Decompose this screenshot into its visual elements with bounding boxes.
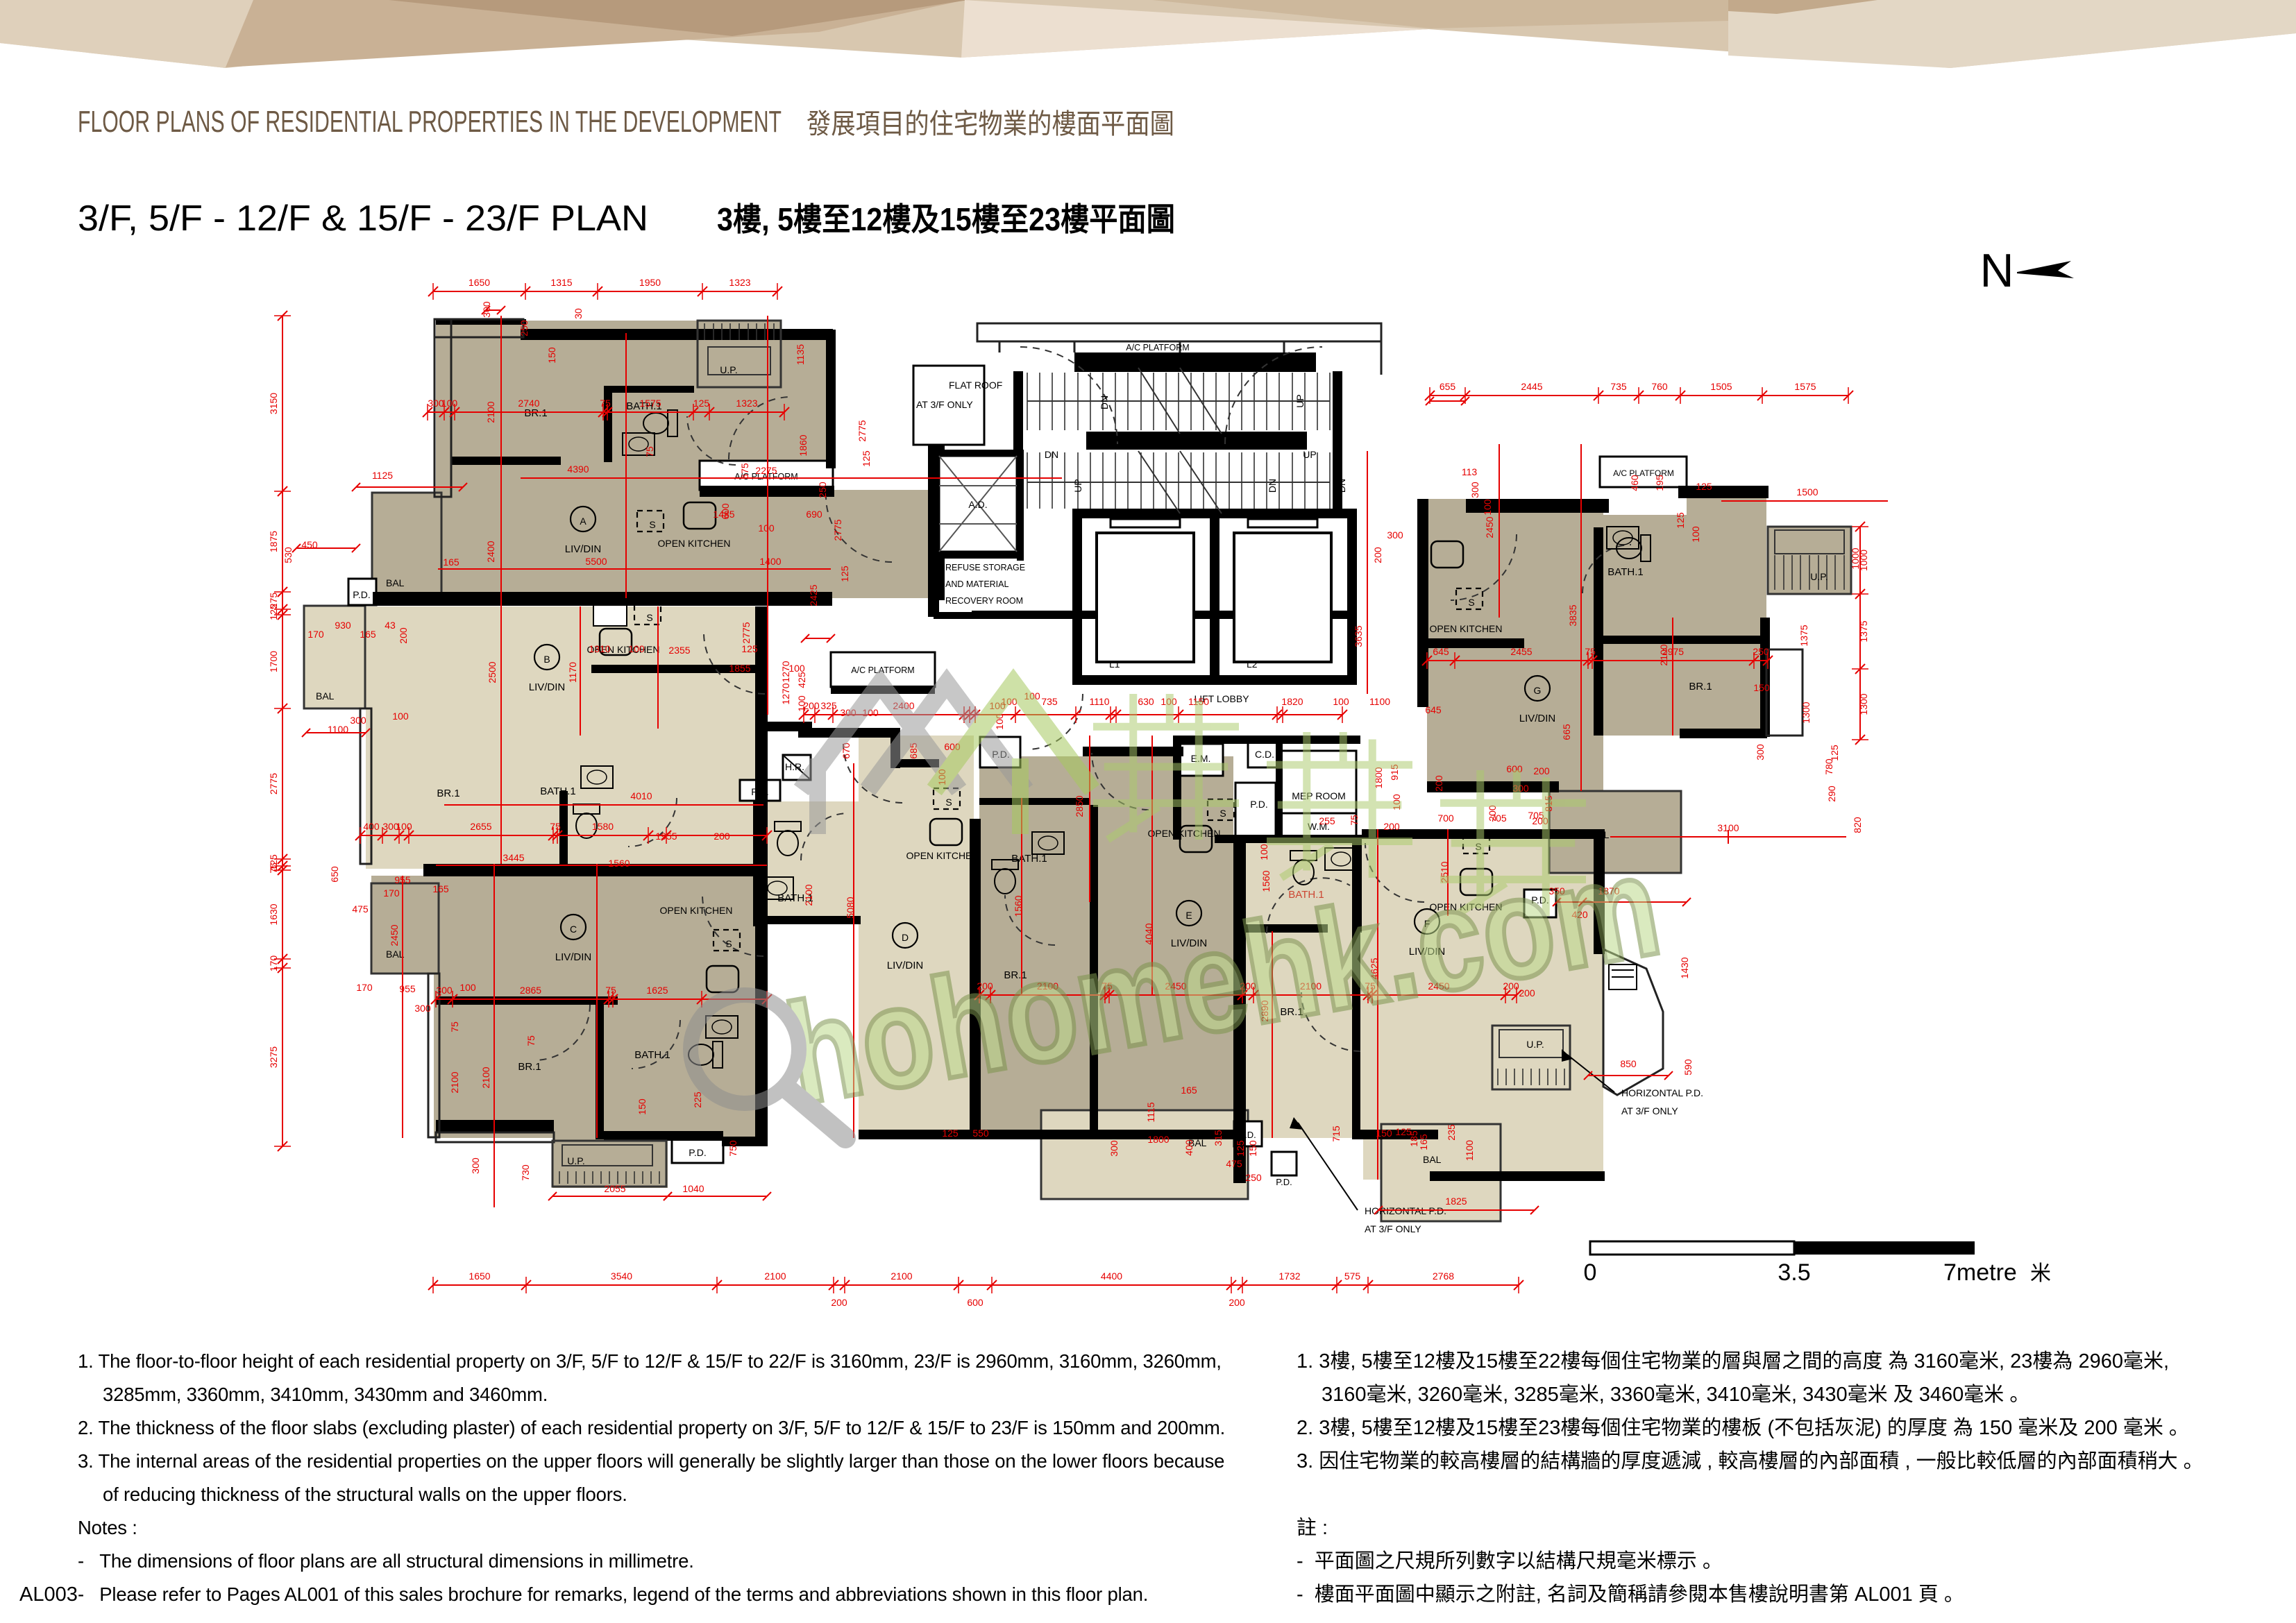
svg-text:200: 200 [714,831,730,842]
svg-text:3540: 3540 [611,1271,632,1282]
svg-text:30: 30 [573,308,584,319]
svg-text:200: 200 [1533,765,1550,776]
svg-text:170: 170 [307,629,324,640]
svg-text:BATH.1: BATH.1 [540,785,575,797]
svg-text:1375: 1375 [1858,620,1869,642]
svg-text:LIV/DIN: LIV/DIN [565,543,602,555]
svg-text:125: 125 [861,450,872,467]
svg-text:H.R.: H.R. [785,761,804,772]
svg-text:645: 645 [1425,704,1442,715]
svg-text:N: N [1980,244,2014,297]
svg-text:550: 550 [972,1128,989,1139]
svg-text:A.D.: A.D. [968,499,987,510]
svg-text:2775: 2775 [741,622,752,643]
svg-text:1650: 1650 [469,277,490,288]
svg-text:發展項目的住宅物業的樓面平面圖: 發展項目的住宅物業的樓面平面圖 [807,109,1174,139]
svg-text:170: 170 [268,955,279,972]
svg-text:1430: 1430 [1679,957,1690,978]
svg-text:LIV/DIN: LIV/DIN [529,681,566,693]
svg-text:U.P.: U.P. [1810,571,1827,582]
svg-text:100: 100 [628,643,645,654]
svg-text:1110: 1110 [1089,696,1109,707]
svg-text:225: 225 [692,1091,703,1108]
svg-text:1000: 1000 [1850,547,1861,569]
svg-text:700: 700 [1437,813,1454,824]
svg-text:530: 530 [282,547,294,563]
svg-text:4400: 4400 [1101,1271,1122,1282]
svg-text:125: 125 [693,398,710,409]
svg-text:1505: 1505 [1710,381,1732,392]
svg-text:DN: DN [1045,449,1058,460]
svg-text:150: 150 [1753,682,1770,693]
svg-text:AND MATERIAL: AND MATERIAL [945,579,1008,589]
svg-text:AT 3/F ONLY: AT 3/F ONLY [916,399,973,410]
svg-text:165: 165 [360,629,376,640]
svg-text:575: 575 [1344,1271,1361,1282]
svg-text:185: 185 [1408,1130,1419,1147]
svg-text:P.D.: P.D. [353,589,370,600]
svg-text:UP: UP [1303,449,1316,460]
svg-text:300: 300 [470,1157,481,1174]
svg-text:113: 113 [1462,466,1478,477]
svg-text:DN: DN [1099,396,1110,409]
svg-text:1315: 1315 [550,277,572,288]
svg-text:250: 250 [518,320,530,337]
svg-text:675: 675 [739,463,750,479]
svg-text:735: 735 [1610,381,1627,392]
svg-text:100: 100 [441,398,458,409]
svg-text:2445: 2445 [1521,381,1542,392]
svg-text:100: 100 [392,711,409,722]
svg-text:3/F, 5/F - 12/F & 15/F - 23/F: 3/F, 5/F - 12/F & 15/F - 23/F PLAN [78,198,648,239]
svg-text:1300: 1300 [1858,693,1869,715]
svg-text:LIV/DIN: LIV/DIN [1519,713,1556,724]
svg-text:400: 400 [1183,1139,1195,1156]
svg-text:1625: 1625 [646,985,668,996]
svg-text:125: 125 [942,1128,959,1139]
svg-text:75: 75 [268,863,279,874]
svg-text:650: 650 [329,866,340,883]
svg-text:OPEN KITCHEN: OPEN KITCHEN [906,850,979,861]
svg-text:300: 300 [414,1003,431,1014]
svg-text:OPEN KITCHEN: OPEN KITCHEN [659,905,732,916]
svg-text:1310: 1310 [589,643,610,654]
svg-text:290: 290 [1826,785,1837,802]
svg-text:645: 645 [1433,646,1449,657]
svg-text:RECOVERY ROOM: RECOVERY ROOM [945,596,1023,606]
svg-text:850: 850 [1620,1058,1637,1069]
svg-text:2355: 2355 [668,645,690,656]
svg-text:75: 75 [550,821,561,832]
svg-text:125: 125 [1235,1140,1246,1157]
svg-text:170: 170 [383,887,400,899]
svg-text:MEP ROOM: MEP ROOM [1292,790,1346,801]
svg-text:1100: 1100 [1464,1140,1475,1161]
svg-text:C.D.: C.D. [1255,749,1274,760]
svg-text:5500: 5500 [585,556,607,567]
svg-text:250: 250 [1245,1172,1262,1183]
svg-text:1400: 1400 [759,556,781,567]
svg-text:100: 100 [396,821,412,832]
svg-text:75: 75 [600,398,611,409]
svg-text:930: 930 [335,620,351,631]
svg-text:125: 125 [741,643,758,654]
svg-text:1800: 1800 [1147,1134,1169,1145]
svg-text:1732: 1732 [1278,1271,1300,1282]
svg-text:LIV/DIN: LIV/DIN [555,951,592,963]
svg-text:475: 475 [352,903,369,915]
svg-text:735: 735 [1041,696,1058,707]
svg-text:200: 200 [398,627,409,644]
svg-text:2400: 2400 [485,541,496,562]
svg-text:L1: L1 [1109,658,1120,670]
svg-text:400: 400 [363,821,380,832]
svg-text:75: 75 [1349,815,1360,826]
svg-text:125: 125 [1829,745,1840,761]
svg-text:2655: 2655 [470,821,491,832]
svg-text:L2: L2 [1247,658,1258,670]
svg-text:150: 150 [636,1098,648,1115]
svg-text:125: 125 [268,604,279,620]
svg-text:1040: 1040 [682,1183,704,1194]
svg-text:600: 600 [967,1297,984,1308]
svg-text:1855: 1855 [729,663,750,674]
svg-text:1825: 1825 [1445,1196,1467,1207]
svg-text:1560: 1560 [1260,870,1272,892]
svg-text:BAL: BAL [386,577,405,588]
svg-text:U.P.: U.P. [567,1155,584,1166]
svg-text:S: S [646,612,652,623]
svg-text:U.P.: U.P. [720,364,737,375]
svg-text:FLOOR PLANS OF RESIDENTIAL PRO: FLOOR PLANS OF RESIDENTIAL PROPERTIES IN… [78,105,782,139]
svg-text:2775: 2775 [856,420,868,441]
svg-text:100: 100 [459,982,476,993]
svg-text:125: 125 [1675,512,1686,529]
svg-text:1955: 1955 [655,831,677,842]
svg-text:1560: 1560 [1013,895,1024,917]
svg-text:UP: UP [1294,394,1306,407]
svg-text:820: 820 [1852,817,1863,833]
svg-text:BATH.1: BATH.1 [634,1049,670,1061]
svg-text:2775: 2775 [832,519,843,541]
svg-text:255: 255 [1319,815,1335,826]
svg-text:2768: 2768 [1433,1271,1454,1282]
svg-text:1575: 1575 [639,398,661,409]
svg-text:100: 100 [1690,526,1701,543]
svg-text:OPEN KITCHEN: OPEN KITCHEN [657,538,730,549]
svg-text:2865: 2865 [520,985,541,996]
svg-text:150: 150 [1376,1128,1392,1139]
svg-text:BR.1: BR.1 [518,1061,541,1073]
svg-text:D: D [902,932,909,943]
svg-text:165: 165 [1181,1085,1197,1096]
svg-text:P.D.: P.D. [1250,799,1267,810]
svg-text:1323: 1323 [729,277,750,288]
svg-text:630: 630 [1138,696,1154,707]
svg-text:P.D.: P.D. [689,1147,706,1158]
svg-text:1100: 1100 [1369,696,1390,707]
svg-text:2455: 2455 [1510,646,1532,657]
svg-text:3樓, 5樓至12樓及15樓至23樓平面圖: 3樓, 5樓至12樓及15樓至23樓平面圖 [717,201,1175,237]
svg-text:655: 655 [1440,381,1456,392]
svg-text:1650: 1650 [469,1271,490,1282]
svg-text:200: 200 [1372,547,1383,563]
svg-text:P.D.: P.D. [1276,1177,1292,1187]
svg-text:100: 100 [1258,844,1269,860]
svg-text:2275: 2275 [755,465,777,476]
svg-text:OPEN KITCHEN: OPEN KITCHEN [1429,623,1502,634]
svg-text:165: 165 [1418,1134,1429,1150]
svg-text:BR.1: BR.1 [524,407,547,419]
svg-text:4010: 4010 [630,790,652,801]
svg-text:150: 150 [1247,1140,1258,1157]
svg-text:200: 200 [803,700,820,711]
svg-text:S: S [1468,597,1474,608]
svg-text:A/C PLATFORM: A/C PLATFORM [1126,343,1189,352]
svg-text:3835: 3835 [1567,604,1578,626]
svg-text:75: 75 [449,1021,460,1033]
svg-text:2055: 2055 [604,1183,625,1194]
svg-text:170: 170 [356,982,373,993]
svg-text:165: 165 [432,883,449,894]
svg-text:2450: 2450 [389,924,400,946]
svg-text:4390: 4390 [567,464,589,475]
svg-text:200: 200 [1383,821,1400,832]
svg-text:730: 730 [520,1164,531,1181]
svg-text:2425: 2425 [808,584,819,606]
svg-text:195: 195 [1654,475,1665,491]
svg-text:100: 100 [1333,696,1349,707]
svg-text:325: 325 [820,700,837,711]
svg-text:1135: 1135 [795,344,806,365]
svg-text:2100: 2100 [485,401,496,423]
svg-text:750: 750 [727,1140,738,1157]
svg-text:300: 300 [1108,1140,1120,1157]
svg-text:125: 125 [839,566,850,582]
svg-text:100: 100 [1482,499,1493,516]
svg-text:3635: 3635 [1353,625,1364,647]
svg-text:1700: 1700 [268,651,279,672]
svg-text:125: 125 [1696,481,1712,492]
svg-text:S: S [649,519,655,530]
svg-text:P.D.: P.D. [1240,1130,1256,1140]
svg-text:0: 0 [1584,1259,1597,1286]
svg-text:715: 715 [1331,1125,1342,1142]
svg-text:HORIZONTAL P.D.: HORIZONTAL P.D. [1621,1087,1703,1098]
svg-text:2450: 2450 [1484,516,1495,538]
svg-text:1270: 1270 [780,683,791,704]
svg-text:BAL: BAL [316,690,335,702]
svg-text:BATH.1: BATH.1 [1011,853,1047,865]
svg-text:2775: 2775 [268,773,279,794]
svg-text:7metre: 7metre [1943,1259,2017,1286]
svg-text:300: 300 [1387,529,1403,541]
svg-text:2100: 2100 [890,1271,912,1282]
svg-text:2100: 2100 [1658,644,1669,665]
svg-text:300: 300 [436,985,453,996]
svg-text:1560: 1560 [608,858,630,869]
svg-text:DN: DN [1267,479,1278,493]
svg-text:1485: 1485 [713,509,734,520]
svg-text:475: 475 [1226,1158,1242,1169]
svg-text:BAL: BAL [1423,1154,1442,1165]
svg-text:1300: 1300 [1800,702,1812,723]
svg-text:690: 690 [806,509,822,520]
svg-text:590: 590 [1682,1059,1694,1076]
svg-text:3275: 3275 [268,1046,279,1068]
svg-text:200: 200 [1433,775,1444,792]
svg-text:1323: 1323 [736,398,757,409]
svg-text:B: B [543,654,550,665]
svg-text:2740: 2740 [518,398,539,409]
svg-text:2500: 2500 [487,661,498,683]
svg-text:200: 200 [1229,1297,1245,1308]
svg-text:75: 75 [525,1035,537,1046]
svg-text:1630: 1630 [268,903,279,925]
svg-text:2100: 2100 [449,1071,460,1093]
svg-text:250: 250 [1753,646,1769,657]
svg-text:250: 250 [817,482,828,498]
svg-text:2100: 2100 [803,884,814,906]
svg-text:300: 300 [1755,744,1766,760]
svg-text:BR.1: BR.1 [437,788,459,799]
svg-text:UP: UP [1072,479,1083,492]
svg-text:1860: 1860 [797,434,809,456]
svg-text:460: 460 [1629,475,1640,491]
svg-text:S: S [1219,808,1226,819]
svg-text:P.D.: P.D. [751,786,768,797]
svg-text:200: 200 [1487,805,1498,822]
svg-text:300: 300 [350,715,366,726]
svg-text:U.P.: U.P. [1526,1039,1544,1050]
svg-text:1875: 1875 [268,531,279,552]
svg-text:200: 200 [831,1297,847,1308]
svg-text:AT 3/F ONLY: AT 3/F ONLY [1365,1223,1421,1234]
svg-text:3150: 3150 [268,393,279,414]
svg-text:C: C [570,924,577,935]
svg-text:FLAT ROOF: FLAT ROOF [949,380,1002,391]
svg-text:955: 955 [394,874,411,885]
svg-text:165: 165 [443,556,459,568]
svg-text:1375: 1375 [1798,624,1809,646]
svg-text:BAL: BAL [386,949,405,960]
svg-text:75: 75 [605,985,616,996]
svg-text:DN: DN [1336,479,1347,493]
svg-text:3.5: 3.5 [1778,1259,1810,1286]
svg-text:2850: 2850 [1074,795,1085,817]
svg-text:235: 235 [1446,1124,1457,1141]
svg-text:1500: 1500 [1796,486,1818,498]
svg-text:REFUSE STORAGE: REFUSE STORAGE [945,563,1025,572]
svg-text:2100: 2100 [480,1067,491,1088]
svg-text:1125: 1125 [372,470,393,481]
svg-text:BATH.1: BATH.1 [1607,566,1643,578]
svg-text:705: 705 [1528,810,1544,821]
svg-text:5080: 5080 [845,897,856,918]
svg-text:760: 760 [1651,381,1668,392]
svg-text:43: 43 [385,620,396,631]
svg-text:75: 75 [644,446,655,457]
svg-text:3100: 3100 [1717,822,1739,833]
svg-text:1575: 1575 [1794,381,1816,392]
svg-text:2100: 2100 [764,1271,786,1282]
svg-text:OPEN KITCHEN: OPEN KITCHEN [1147,828,1220,839]
svg-text:665: 665 [1561,724,1572,740]
svg-text:米: 米 [2030,1262,2051,1285]
svg-text:S: S [725,938,732,949]
svg-text:75: 75 [1585,646,1596,657]
svg-text:A: A [580,516,586,527]
svg-text:G: G [1534,685,1542,696]
svg-text:1950: 1950 [639,277,661,288]
svg-text:AT 3/F ONLY: AT 3/F ONLY [1621,1105,1678,1116]
svg-text:1115: 1115 [1145,1102,1156,1122]
svg-text:1580: 1580 [592,821,614,832]
svg-text:300: 300 [1469,482,1480,498]
svg-text:100: 100 [758,522,775,534]
svg-text:955: 955 [399,983,416,994]
svg-text:1270: 1270 [780,661,791,682]
svg-text:315: 315 [1213,1130,1224,1146]
svg-text:3445: 3445 [503,852,524,863]
svg-text:150: 150 [546,347,557,364]
svg-text:BR.1: BR.1 [1689,681,1712,692]
svg-text:1170: 1170 [567,662,578,683]
svg-text:1820: 1820 [1281,696,1303,707]
svg-text:425: 425 [796,672,807,688]
svg-text:S: S [945,797,952,808]
